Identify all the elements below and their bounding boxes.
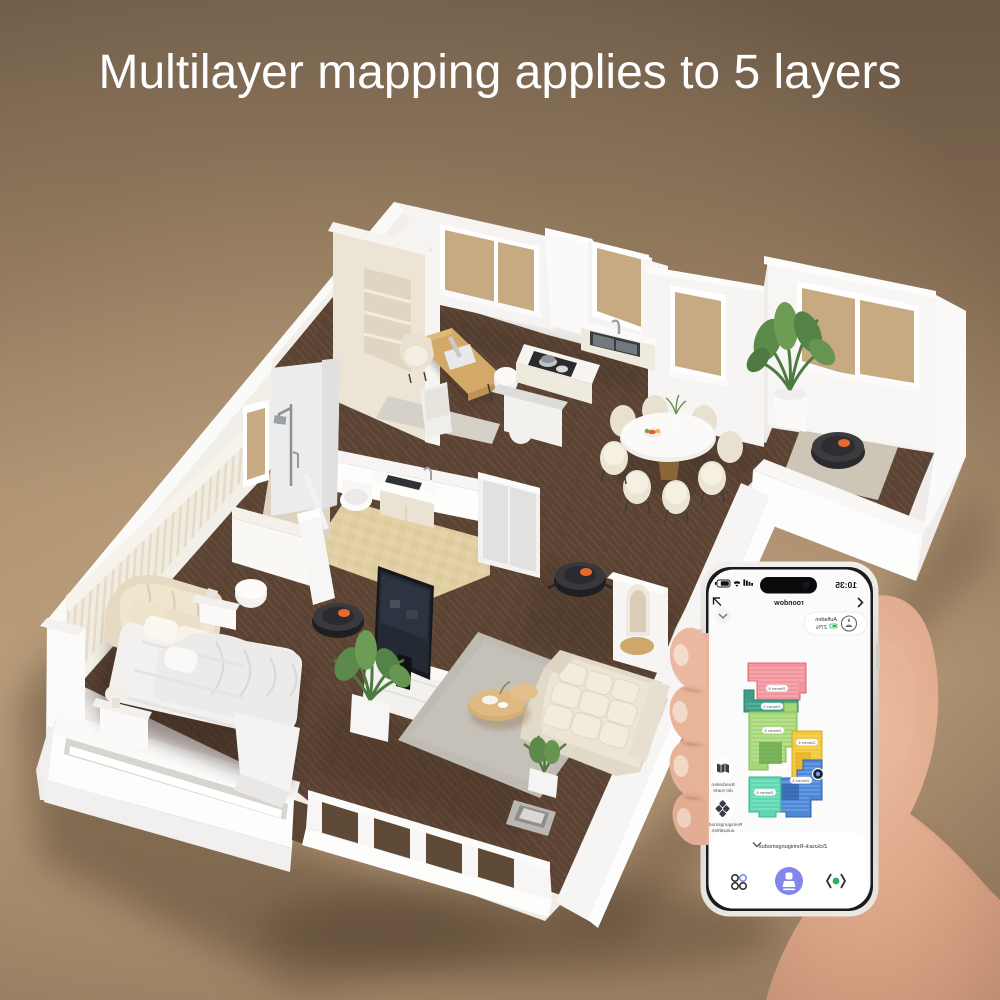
svg-text:27%: 27% (816, 625, 827, 631)
svg-text:der Karte: der Karte (713, 788, 733, 794)
svg-text:Zimmer 2: Zimmer 2 (763, 704, 781, 709)
svg-text:Reinigungsmodus: Reinigungsmodus (703, 822, 742, 828)
svg-text:10:35: 10:35 (835, 580, 857, 590)
svg-text:Zimmer 3: Zimmer 3 (792, 778, 810, 783)
svg-text:Zimmer 4: Zimmer 4 (798, 740, 816, 745)
svg-text:Bearbeiten: Bearbeiten (711, 782, 735, 788)
svg-text:Aufladen: Aufladen (815, 617, 837, 623)
svg-text:Multilayer mapping applies to: Multilayer mapping applies to 5 layers (98, 46, 901, 99)
svg-text:Zimmer 5: Zimmer 5 (764, 728, 782, 733)
svg-text:roondow: roondow (774, 600, 804, 607)
svg-text:Zickzack-Reinigungsmodus: Zickzack-Reinigungsmodus (759, 844, 828, 850)
svg-text:Zimmer 8: Zimmer 8 (768, 686, 786, 691)
svg-text:Zimmer 6: Zimmer 6 (756, 790, 774, 795)
